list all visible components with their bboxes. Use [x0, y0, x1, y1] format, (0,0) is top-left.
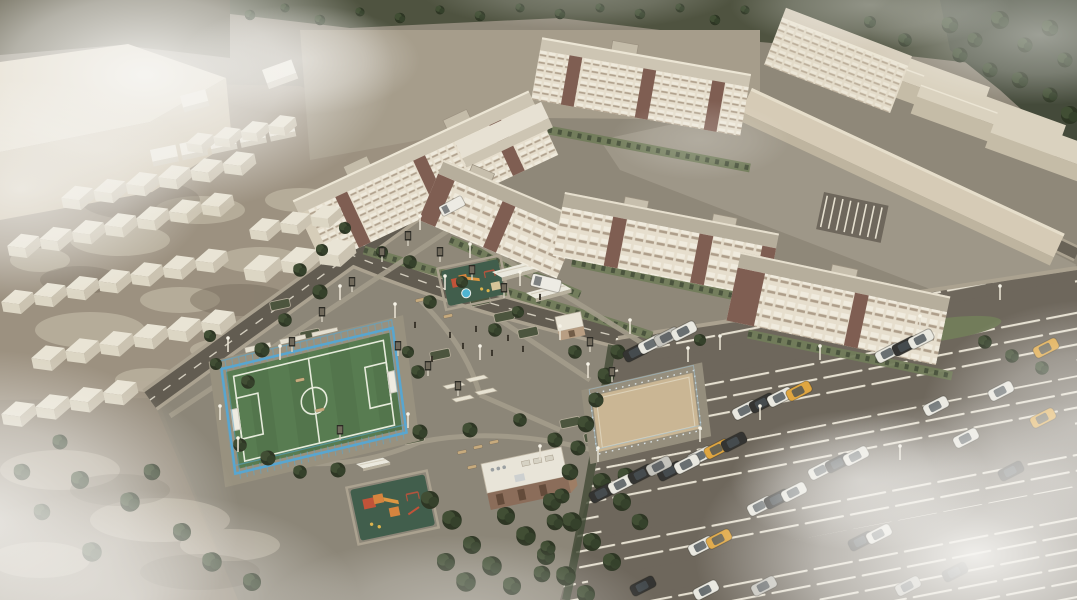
- architectural-render: Aerial 3D architectural rendering of a r…: [0, 0, 1077, 600]
- render-canvas: Aerial 3D architectural rendering of a r…: [0, 0, 1077, 600]
